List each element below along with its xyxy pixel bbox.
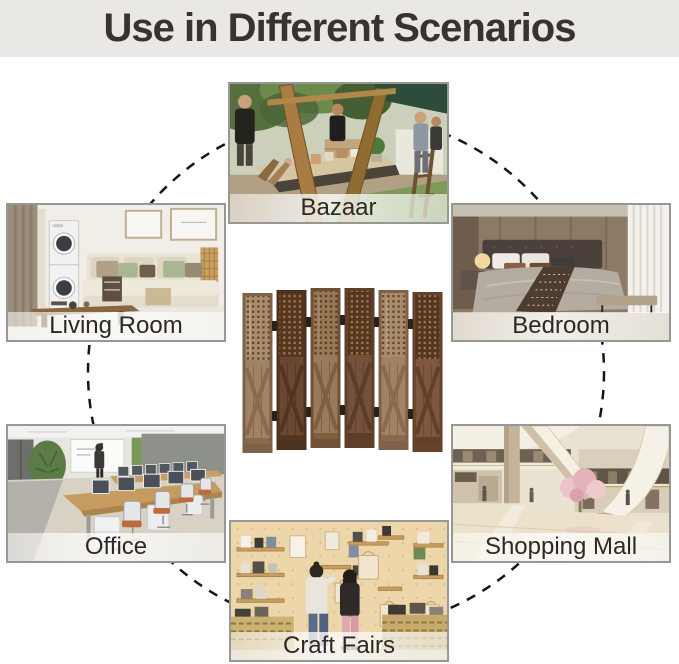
scenario-label-craft-fairs: Craft Fairs: [231, 632, 447, 660]
scenario-card-office: Office: [6, 424, 226, 563]
room-divider-product: [240, 283, 446, 459]
page-title: Use in Different Scenarios: [104, 6, 576, 51]
scenario-label-living-room: Living Room: [8, 312, 224, 340]
title-band: Use in Different Scenarios: [0, 0, 679, 57]
scenario-label-bedroom: Bedroom: [453, 312, 669, 340]
scenario-card-bedroom: Bedroom: [451, 203, 671, 342]
scenario-card-craft-fairs: Craft Fairs: [229, 520, 449, 662]
scenario-label-office: Office: [8, 533, 224, 561]
scenario-card-shopping-mall: Shopping Mall: [451, 424, 671, 563]
scenario-card-living-room: Living Room: [6, 203, 226, 342]
scenario-infographic: Use in Different Scenarios: [0, 0, 679, 664]
scenario-label-bazaar: Bazaar: [230, 194, 447, 222]
scenario-card-bazaar: Bazaar: [228, 82, 449, 224]
room-divider-image: [240, 283, 446, 459]
scenario-label-shopping-mall: Shopping Mall: [453, 533, 669, 561]
